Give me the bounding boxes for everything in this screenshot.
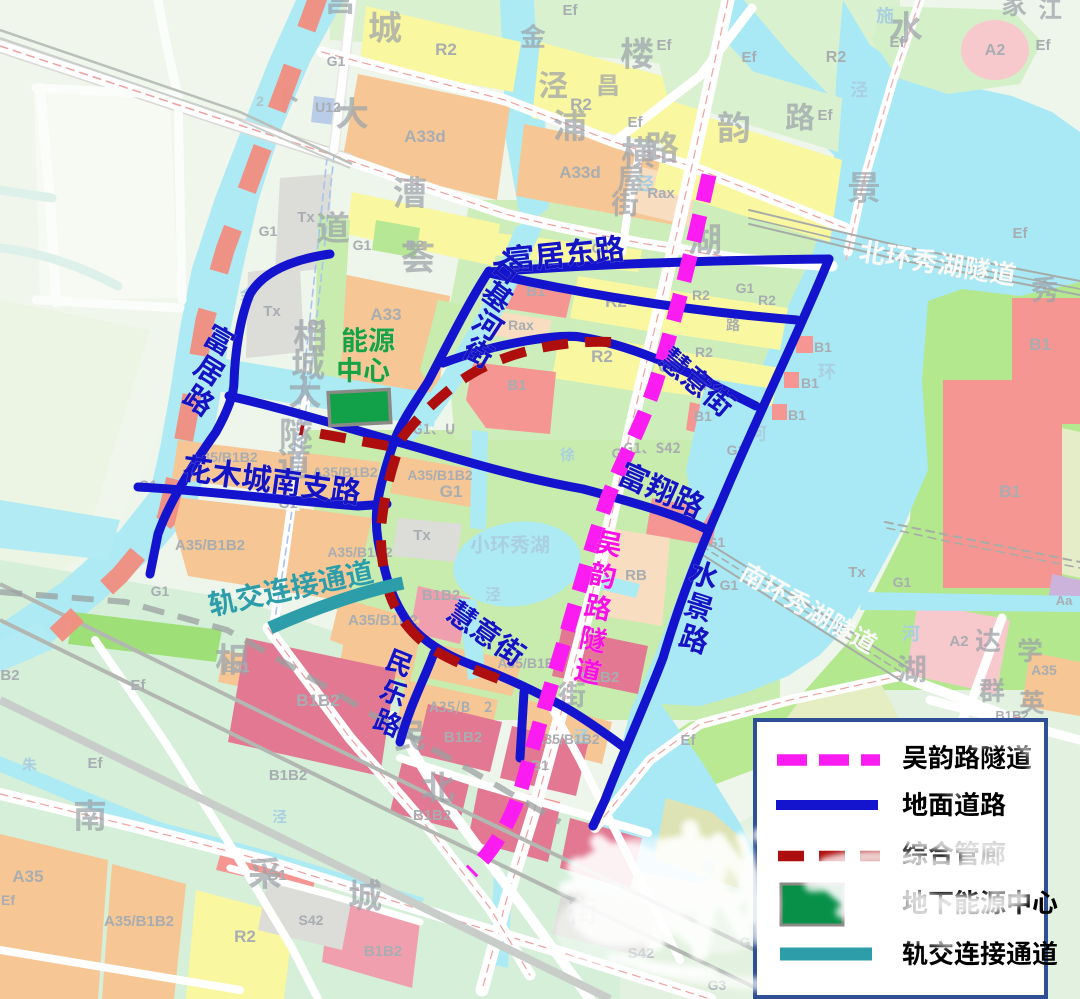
svg-text:B1B2: B1B2 (296, 691, 339, 710)
svg-text:A35/B1B2: A35/B1B2 (104, 913, 174, 930)
svg-text:B1B2: B1B2 (413, 807, 451, 824)
svg-text:B1B2: B1B2 (422, 587, 460, 604)
svg-text:B1: B1 (814, 339, 832, 355)
svg-text:Ef: Ef (890, 34, 906, 51)
svg-text:Tx: Tx (263, 303, 281, 320)
svg-text:Ef: Ef (88, 755, 104, 772)
svg-text:Ef: Ef (657, 37, 673, 54)
svg-text:B2: B2 (0, 667, 19, 684)
svg-text:R2: R2 (591, 347, 613, 366)
svg-text:Tx: Tx (297, 209, 315, 226)
svg-text:G1: G1 (720, 577, 739, 593)
svg-text:Ef: Ef (628, 114, 644, 131)
svg-text:Ef: Ef (681, 732, 697, 749)
svg-text:R2: R2 (570, 95, 592, 114)
svg-text:R2: R2 (692, 287, 710, 303)
svg-text:RB: RB (625, 567, 647, 584)
svg-text:B1: B1 (788, 407, 806, 423)
svg-text:B1: B1 (801, 375, 819, 391)
svg-text:A35: A35 (1031, 662, 1057, 678)
svg-text:A33d: A33d (559, 163, 601, 182)
svg-text:G1: G1 (353, 237, 372, 253)
svg-text:B1: B1 (999, 482, 1021, 501)
svg-text:R2: R2 (826, 49, 847, 66)
svg-text:2: 2 (256, 93, 264, 109)
svg-text:A2: A2 (949, 633, 968, 650)
svg-text:R2: R2 (234, 927, 256, 946)
svg-text:Tx: Tx (413, 527, 431, 544)
svg-text:Rax: Rax (647, 185, 675, 202)
svg-text:R2: R2 (435, 40, 457, 59)
svg-text:B1B2: B1B2 (269, 767, 307, 784)
svg-text:G1: G1 (327, 53, 346, 69)
svg-text:A35/B1B2: A35/B1B2 (175, 537, 245, 554)
svg-text:A35/B1B2: A35/B1B2 (407, 467, 473, 483)
svg-text:R2: R2 (758, 292, 776, 308)
svg-text:Rax: Rax (508, 317, 534, 333)
svg-text:A33d: A33d (404, 127, 446, 146)
svg-text:G1: G1 (893, 574, 912, 590)
svg-text:B1: B1 (267, 867, 286, 884)
svg-text:B1: B1 (507, 377, 526, 394)
svg-text:G1: G1 (736, 280, 755, 296)
svg-text:Ef: Ef (1036, 37, 1052, 54)
svg-text:G1: G1 (151, 583, 170, 599)
svg-text:B1B2: B1B2 (364, 943, 402, 960)
svg-text:G1: G1 (308, 316, 327, 332)
svg-text:Ef: Ef (1013, 225, 1029, 242)
svg-text:B1: B1 (694, 408, 712, 424)
svg-text:U12: U12 (315, 99, 341, 115)
svg-text:G1: G1 (259, 223, 278, 239)
svg-text:Ef: Ef (131, 677, 147, 694)
svg-text:Ef: Ef (742, 49, 758, 66)
svg-text:A2: A2 (985, 42, 1006, 59)
svg-text:Ef: Ef (1, 892, 15, 908)
svg-text:S42: S42 (299, 912, 324, 928)
svg-text:A35: A35 (12, 867, 43, 886)
svg-text:R2: R2 (406, 237, 424, 253)
svg-text:Ef: Ef (563, 2, 579, 19)
svg-text:G1: G1 (440, 482, 463, 501)
svg-text:B1B2: B1B2 (444, 729, 482, 746)
svg-text:B41: B41 (224, 659, 250, 675)
svg-text:Tx: Tx (848, 564, 866, 581)
svg-text:B1: B1 (1029, 335, 1051, 354)
svg-text:A33: A33 (370, 305, 401, 324)
svg-text:Ef: Ef (818, 107, 834, 124)
svg-text:Aa: Aa (1056, 593, 1073, 608)
svg-text:R2: R2 (695, 344, 713, 360)
